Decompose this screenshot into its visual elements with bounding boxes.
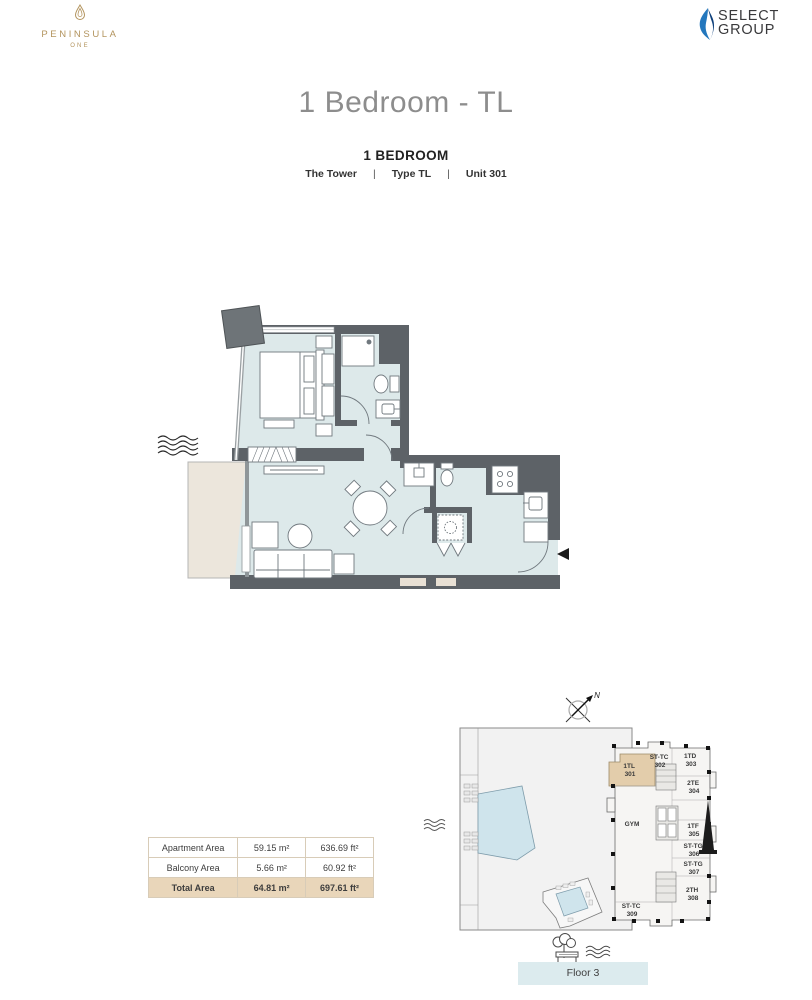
select-flame-icon	[698, 8, 715, 40]
structural-column	[222, 306, 265, 349]
peninsula-logo-text: PENINSULA	[34, 29, 126, 40]
select-logo-line2: GROUP	[718, 23, 779, 37]
tower-name: The Tower	[305, 168, 357, 180]
toilet-bathroom	[374, 375, 399, 393]
building-footprint: 1TL 301 ST-TC 302 1TD 303 2TE 304 GYM 1T…	[607, 741, 716, 926]
floor-label: Floor 3	[518, 962, 648, 985]
bedroom-window	[262, 327, 334, 333]
area-sqft: 636.69 ft²	[305, 838, 373, 858]
powder-basin	[404, 463, 434, 486]
compass-label: N	[594, 691, 600, 700]
bathroom-sink	[376, 400, 400, 418]
key-plan: N	[410, 680, 760, 990]
separator: |	[373, 168, 376, 180]
toilet-powder	[441, 463, 453, 486]
unit-label: 2TH 308	[686, 887, 700, 902]
nightstand	[316, 424, 332, 436]
bed-bench	[264, 420, 294, 428]
water-waves-icon	[424, 820, 445, 831]
kitchen-sink	[523, 492, 548, 518]
tree-bench-icon	[553, 934, 578, 963]
separator: |	[447, 168, 450, 180]
compass-icon: N	[566, 691, 600, 722]
side-table	[252, 522, 278, 548]
kitchen-cabinet	[524, 522, 548, 542]
area-table: Apartment Area 59.15 m² 636.69 ft² Balco…	[148, 837, 374, 898]
armchair	[334, 554, 354, 574]
unit-number: Unit 301	[466, 168, 507, 180]
unit-label-gym: GYM	[625, 821, 640, 828]
peninsula-one-logo: PENINSULA ONE	[34, 4, 126, 49]
area-label: Apartment Area	[149, 838, 238, 858]
unit-label: 1TD 303	[684, 753, 698, 768]
unit-meta-line: The Tower|Type TL|Unit 301	[0, 168, 812, 180]
table-row-total: Total Area 64.81 m² 697.61 ft²	[149, 878, 374, 898]
nightstand	[316, 336, 332, 348]
threshold	[400, 578, 426, 586]
sofa	[254, 550, 332, 578]
coffee-table	[288, 524, 312, 548]
table-row: Balcony Area 5.66 m² 60.92 ft²	[149, 858, 374, 878]
unit-label: 1TF 305	[687, 823, 700, 838]
select-logo-line1: SELECT	[718, 9, 779, 23]
water-waves-icon	[586, 946, 610, 958]
bed	[260, 350, 324, 420]
floorplan-brochure-page: PENINSULA ONE SELECT GROUP 1 Bedroom - T…	[0, 0, 812, 1000]
type-name: Type TL	[392, 168, 431, 180]
stove	[492, 466, 518, 493]
area-sqm: 5.66 m²	[238, 858, 306, 878]
balcony-door	[242, 526, 250, 572]
peninsula-drop-icon	[73, 4, 87, 22]
elevator-core	[656, 806, 678, 840]
area-label: Balcony Area	[149, 858, 238, 878]
water-waves-icon	[158, 436, 198, 455]
area-sqm: 59.15 m²	[238, 838, 306, 858]
unit-label: 2TE 304	[687, 780, 701, 795]
area-sqft: 60.92 ft²	[305, 858, 373, 878]
unit-type-heading: 1 BEDROOM	[0, 148, 812, 163]
page-title: 1 Bedroom - TL	[0, 86, 812, 120]
unit-label: 1TL 301	[623, 763, 636, 778]
main-floorplan	[148, 296, 578, 606]
area-label: Total Area	[149, 878, 238, 898]
peninsula-logo-sub: ONE	[34, 43, 126, 49]
table-row: Apartment Area 59.15 m² 636.69 ft²	[149, 838, 374, 858]
area-sqft: 697.61 ft²	[305, 878, 373, 898]
select-group-logo: SELECT GROUP	[698, 8, 779, 40]
entry-arrow-icon	[557, 548, 569, 560]
threshold	[436, 578, 456, 586]
shower	[342, 336, 374, 366]
area-sqm: 64.81 m²	[238, 878, 306, 898]
